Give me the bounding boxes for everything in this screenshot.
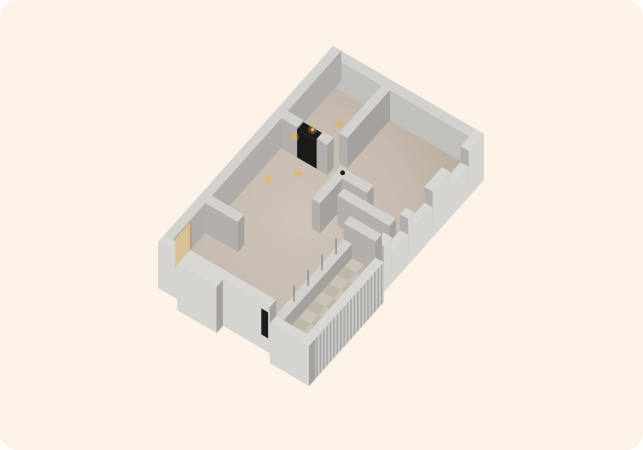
wall-l-leg-b-sw-face (312, 199, 320, 234)
ceiling-light (311, 128, 314, 131)
floor-plan-card (0, 0, 643, 450)
wall-se-4-se-face (384, 237, 392, 292)
ceiling-light (337, 122, 340, 125)
ceiling-light (297, 172, 300, 175)
wall-sw-balcony-se-face (309, 339, 315, 386)
floor-plan-3d-render (0, 0, 643, 450)
wall-w2-right-sw-face (317, 139, 328, 175)
dark-door-slot (261, 308, 268, 338)
wall-se-3-se-face (408, 212, 414, 265)
ceiling-light (267, 178, 270, 181)
wall-cap-pipe-dot (340, 170, 345, 175)
ceiling-light (293, 135, 296, 138)
entry-door-frame (190, 221, 192, 251)
wall-bedroom-divider-sw-face (339, 133, 347, 168)
